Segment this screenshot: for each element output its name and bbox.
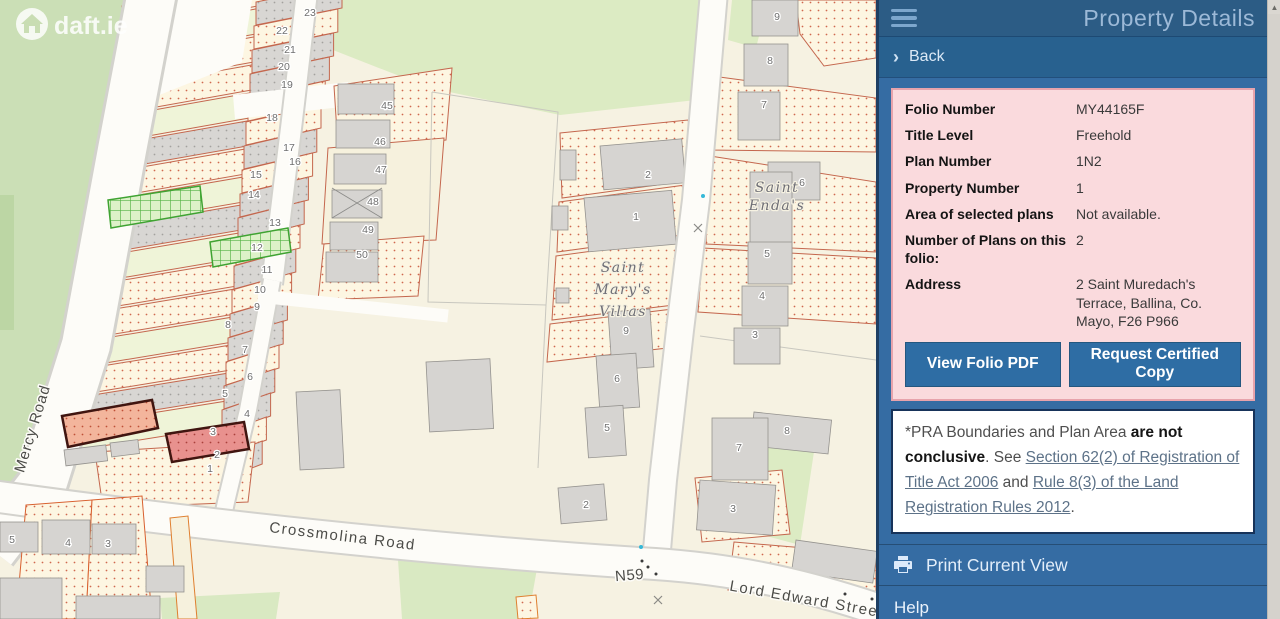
- road-label: N59: [614, 566, 644, 585]
- landdirect-map-viewer: daft.ie 23222120191817161514131211109876…: [0, 0, 1280, 619]
- printer-icon: [893, 556, 913, 574]
- parcel-number-label: 13: [269, 217, 281, 229]
- parcel-number-label: 49: [362, 224, 374, 236]
- detail-row-title-level: Title Level Freehold: [905, 126, 1241, 144]
- parcel-number-label: 23: [304, 7, 316, 19]
- parcel-number-label: 10: [254, 284, 266, 296]
- parcel-number-label: 4: [244, 408, 250, 420]
- parcel-number-label: 5: [9, 534, 15, 546]
- parcel-number-label: 2: [214, 449, 220, 461]
- panel-header: Property Details: [879, 0, 1267, 36]
- parcel-number-label: 3: [730, 503, 736, 515]
- parcel-number-label: 11: [262, 264, 273, 276]
- parcel-number-label: 22: [276, 25, 288, 37]
- parcel-number-label: 16: [289, 156, 301, 168]
- parcel-number-label: 9: [623, 325, 629, 337]
- parcel-number-label: 6: [614, 373, 620, 385]
- help-button[interactable]: Help: [879, 586, 1267, 619]
- parcel-number-label: 6: [799, 177, 805, 189]
- parcel-number-label: 12: [251, 242, 263, 254]
- request-certified-copy-button[interactable]: Request Certified Copy: [1069, 342, 1241, 387]
- parcel-number-label: 47: [375, 164, 387, 176]
- detail-row-folio: Folio Number MY44165F: [905, 100, 1241, 118]
- building: [110, 440, 139, 457]
- parcel-number-label: 15: [250, 169, 262, 181]
- parcel-number-label: 5: [764, 248, 770, 260]
- parcel-number-label: 8: [225, 319, 231, 331]
- property-details-panel: Property Details › Back Folio Number MY4…: [876, 0, 1267, 619]
- parcel-number-label: 5: [222, 388, 228, 400]
- parcel-number-label: 17: [283, 142, 295, 154]
- parcel-number-label: 7: [761, 99, 767, 111]
- parcel-number-label: 2: [645, 169, 651, 181]
- parcel-number-label: 14: [248, 189, 260, 201]
- daft-logo: daft.ie: [16, 8, 128, 40]
- disclaimer-text: *PRA Boundaries and Plan Area: [905, 424, 1131, 441]
- print-label: Print Current View: [926, 555, 1068, 576]
- parcel-number-label: 18: [266, 112, 278, 124]
- map-canvas[interactable]: daft.ie 23222120191817161514131211109876…: [0, 0, 877, 619]
- view-folio-pdf-button[interactable]: View Folio PDF: [905, 342, 1061, 387]
- detail-row-area: Area of selected plans Not available.: [905, 205, 1241, 223]
- print-current-view-button[interactable]: Print Current View: [879, 544, 1267, 586]
- panel-title: Property Details: [917, 5, 1255, 32]
- property-details-card: Folio Number MY44165F Title Level Freeho…: [891, 88, 1255, 401]
- parcel-number-label: 4: [759, 290, 765, 302]
- detail-row-plan-count: Number of Plans on this folio: 2: [905, 231, 1241, 267]
- back-chevron-icon: ›: [893, 48, 899, 66]
- scroll-up-icon[interactable]: ▲: [1268, 0, 1280, 14]
- place-label: SaintMary'sVillas: [593, 260, 651, 320]
- detail-row-address: Address 2 Saint Muredach's Terrace, Ball…: [905, 275, 1241, 330]
- parcel-number-label: 21: [284, 44, 296, 56]
- disclaimer-box: *PRA Boundaries and Plan Area are not co…: [891, 409, 1255, 534]
- daft-logo-text: daft.ie: [54, 12, 128, 40]
- parcel-number-label: 45: [381, 100, 393, 112]
- parcel-number-label: 1: [633, 211, 639, 223]
- parcel-number-label: 8: [767, 55, 773, 67]
- parcel-number-label: 8: [784, 425, 790, 437]
- parcel-number-label: 9: [774, 11, 780, 23]
- detail-row-property-number: Property Number 1: [905, 179, 1241, 197]
- parcel-number-label: 3: [752, 329, 758, 341]
- parcel-number-label: 4: [65, 537, 71, 549]
- parcel-number-label: 19: [281, 79, 293, 91]
- parcel-number-label: 48: [367, 196, 379, 208]
- parcel-number-label: 46: [374, 136, 386, 148]
- panel-scrollbar[interactable]: ▲: [1267, 0, 1280, 619]
- menu-icon[interactable]: [891, 9, 917, 28]
- parcel-number-label: 6: [247, 371, 253, 383]
- back-button[interactable]: › Back: [879, 36, 1267, 78]
- parcel-number-label: 2: [583, 499, 589, 511]
- parcel-number-label: 7: [242, 344, 248, 356]
- parcel-number-label: 9: [254, 301, 260, 313]
- parcel-number-label: 7: [736, 442, 742, 454]
- help-label: Help: [894, 598, 929, 618]
- parcel-number-label: 1: [207, 463, 213, 475]
- back-label: Back: [909, 48, 945, 66]
- parcel-number-label: 3: [210, 426, 216, 438]
- parcel-number-label: 50: [356, 249, 368, 261]
- parcel-number-label: 3: [105, 538, 111, 550]
- parcel-number-label: 20: [278, 61, 290, 73]
- parcel-number-label: 5: [604, 422, 610, 434]
- detail-row-plan-number: Plan Number 1N2: [905, 152, 1241, 170]
